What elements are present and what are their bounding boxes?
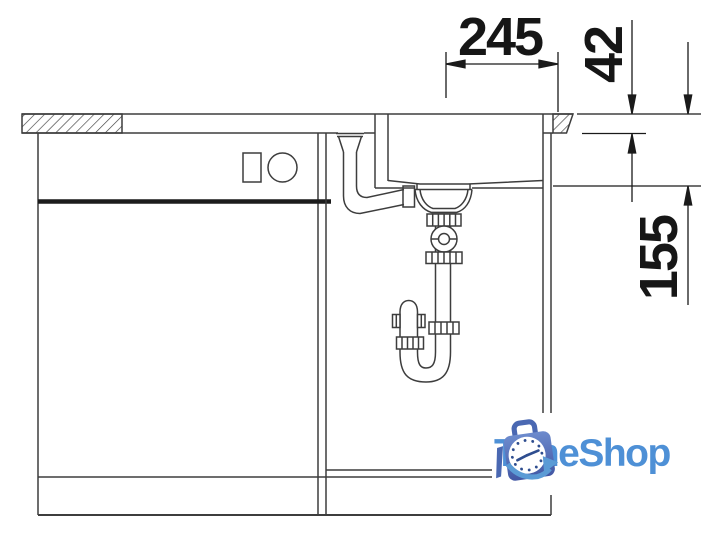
overflow-coupling-sleeve: [403, 186, 415, 207]
technical-drawing-canvas: 245 42 155: [0, 0, 720, 538]
arrowhead-up-icon: [628, 134, 635, 153]
dimension-label-42: 42: [577, 0, 631, 115]
drain-strainer: [415, 190, 472, 213]
left-cabinet: [38, 133, 551, 515]
timeshop-clock-bag-icon: [492, 413, 564, 489]
countertop-section-hatch-left: [22, 114, 122, 133]
siphon-trap: [393, 214, 463, 382]
ball-joint-ring: [431, 226, 457, 252]
dimension-label-245: 245: [440, 10, 560, 64]
appliance-button: [243, 153, 261, 182]
countertop: [22, 114, 573, 133]
dimension-label-155: 155: [632, 187, 686, 329]
coupling-nut: [397, 337, 424, 349]
coupling-nut: [429, 322, 459, 334]
sink-bowl: [375, 114, 543, 189]
coupling-nut: [427, 214, 461, 226]
appliance-knob: [268, 153, 297, 182]
countertop-section-hatch-right: [553, 114, 573, 133]
coupling-nut: [426, 252, 462, 264]
arrowhead-down-icon: [684, 95, 691, 114]
timeshop-logo: TimeShop: [492, 413, 718, 495]
